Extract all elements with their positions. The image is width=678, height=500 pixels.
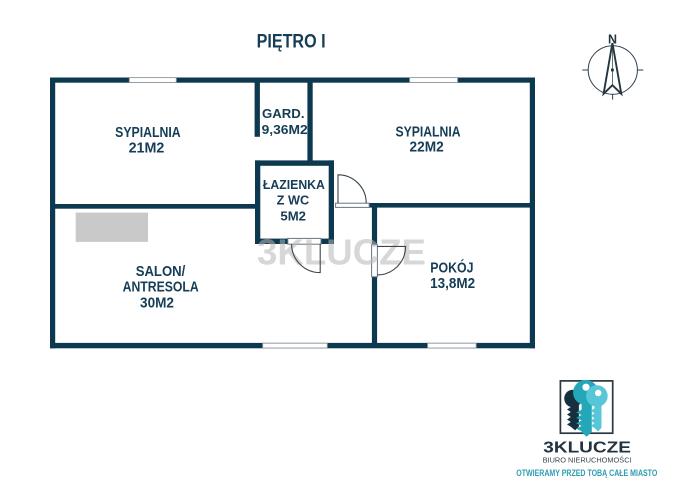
svg-text:SALON/: SALON/: [136, 264, 186, 280]
svg-text:30M2: 30M2: [140, 295, 174, 311]
svg-text:N: N: [608, 33, 617, 47]
svg-text:PIĘTRO I: PIĘTRO I: [257, 31, 326, 52]
svg-text:Z WC: Z WC: [277, 193, 310, 208]
svg-text:POKÓJ: POKÓJ: [430, 259, 473, 277]
svg-text:13,8M2: 13,8M2: [430, 276, 475, 292]
svg-text:GARD.: GARD.: [262, 106, 305, 121]
svg-text:5M2: 5M2: [280, 208, 306, 223]
svg-text:22M2: 22M2: [410, 140, 444, 156]
svg-text:SYPIALNIA: SYPIALNIA: [115, 125, 181, 141]
svg-text:21M2: 21M2: [129, 141, 165, 157]
svg-text:SYPIALNIA: SYPIALNIA: [395, 124, 460, 140]
svg-text:ANTRESOLA: ANTRESOLA: [123, 280, 199, 296]
svg-text:3KLUCZE: 3KLUCZE: [543, 439, 631, 456]
svg-text:ŁAZIENKA: ŁAZIENKA: [263, 177, 326, 192]
svg-text:9,36M2: 9,36M2: [262, 122, 308, 137]
svg-text:OTWIERAMY PRZED TOBĄ CAŁE MIAS: OTWIERAMY PRZED TOBĄ CAŁE MIASTO: [516, 468, 657, 478]
svg-text:3KLUCZE: 3KLUCZE: [257, 231, 426, 272]
svg-text:BIURO NIERUCHOMOŚCI: BIURO NIERUCHOMOŚCI: [543, 455, 632, 464]
